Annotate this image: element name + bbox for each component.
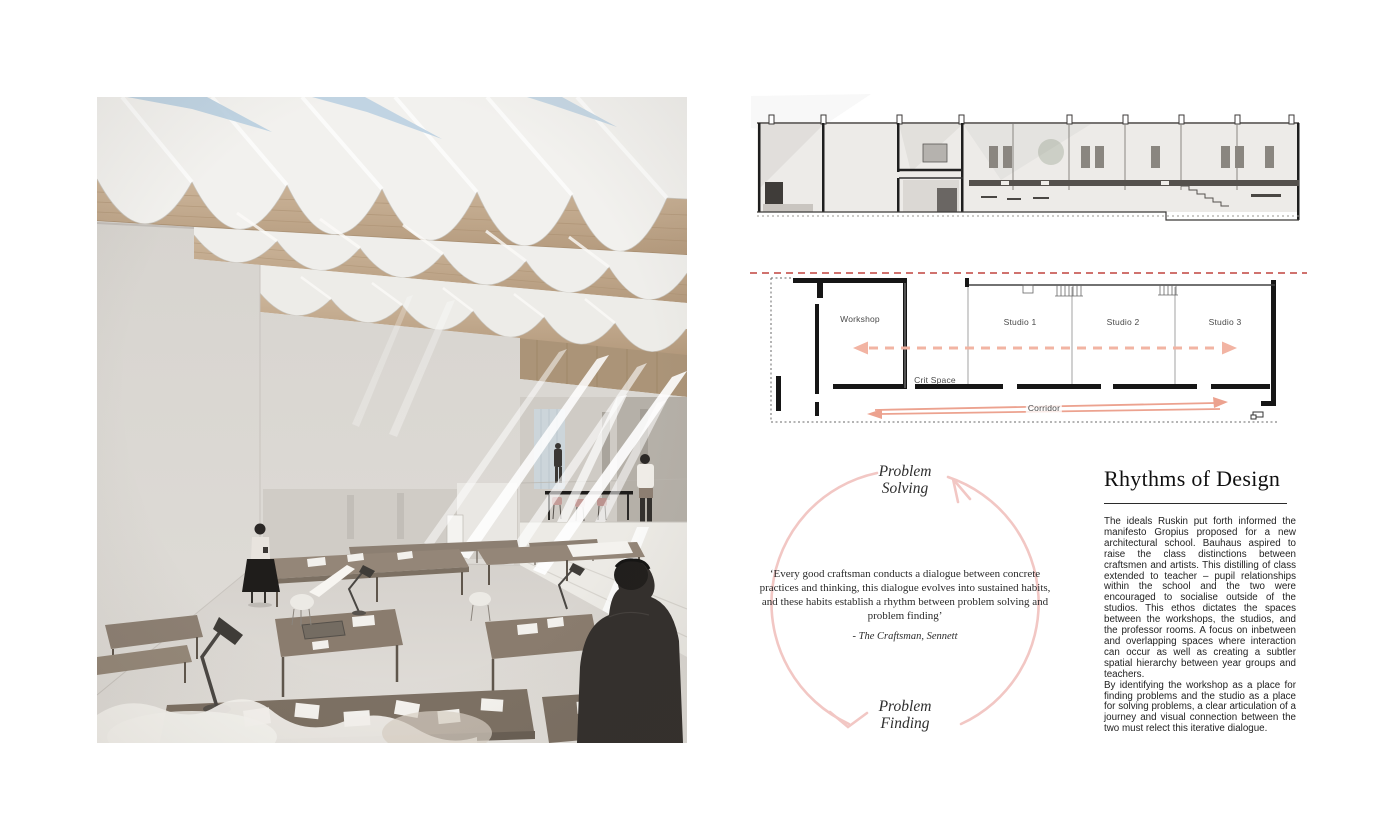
plan-walls	[776, 278, 1276, 416]
section-ground	[757, 212, 1299, 220]
floor-plan: Workshop Studio 1 Studio 2 Studio 3 Crit…	[765, 276, 1285, 428]
quote-text: ‘Every good craftsman conducts a dialogu…	[752, 567, 1058, 623]
studio-interior-render	[97, 97, 687, 743]
cycle-label-problem-solving: Problem Solving	[805, 464, 1005, 497]
article-paragraph-1: The ideals Ruskin put forth informed the…	[1104, 517, 1296, 681]
section-cut-line	[750, 264, 1307, 272]
plan-flow-arrow	[853, 342, 1237, 355]
plan-label-studio-2: Studio 2	[1107, 317, 1140, 327]
studio-interior-render-svg	[97, 97, 687, 743]
plan-stairs	[1023, 285, 1178, 296]
building-section-drawing	[751, 94, 1307, 238]
building-section-svg	[751, 94, 1307, 238]
presentation-board: Workshop Studio 1 Studio 2 Studio 3 Crit…	[0, 0, 1400, 840]
plan-boundary	[771, 278, 1277, 422]
plan-label-corridor: Corridor	[1026, 403, 1062, 413]
quote-block: ‘Every good craftsman conducts a dialogu…	[752, 567, 1058, 642]
plan-door	[1251, 412, 1263, 419]
article-paragraph-2: By identifying the workshop as a place f…	[1104, 681, 1296, 736]
plan-label-studio-1: Studio 1	[1004, 317, 1037, 327]
plan-label-crit-space: Crit Space	[914, 375, 956, 385]
cycle-label-problem-finding: Problem Finding	[805, 699, 1005, 732]
vignette	[97, 97, 687, 743]
article-title: Rhythms of Design	[1104, 466, 1296, 492]
quote-attribution: - The Craftsman, Sennett	[752, 631, 1058, 642]
plan-label-workshop: Workshop	[840, 314, 880, 324]
article: Rhythms of Design The ideals Ruskin put …	[1104, 466, 1296, 735]
plan-label-studio-3: Studio 3	[1209, 317, 1242, 327]
title-rule	[1104, 503, 1287, 504]
